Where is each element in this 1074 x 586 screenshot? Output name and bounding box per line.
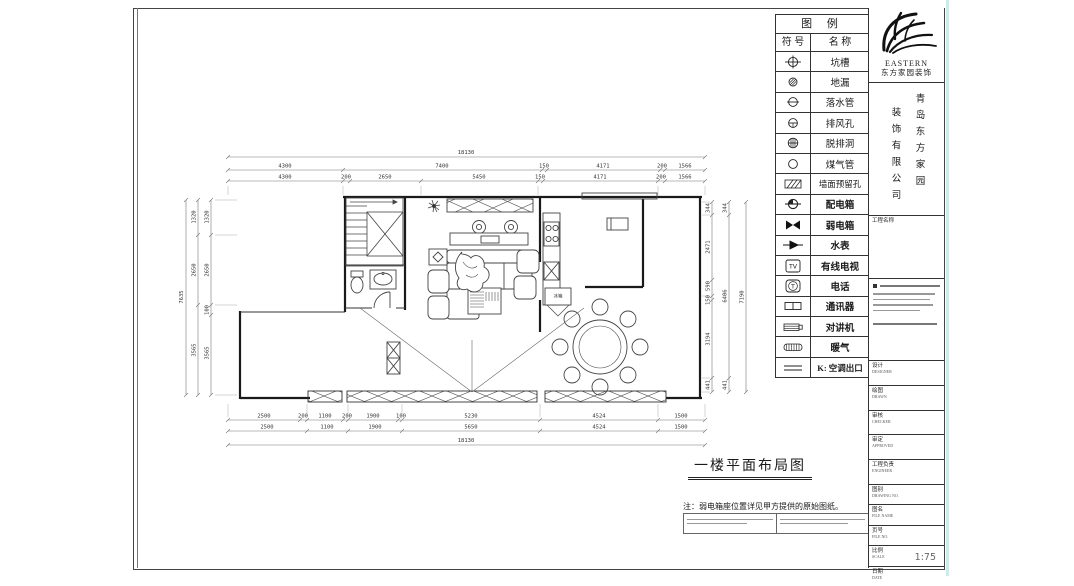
bay-window xyxy=(447,199,533,212)
pit-symbol xyxy=(782,55,804,69)
dining-chair xyxy=(632,339,648,355)
floor-plan-canvas: 冰箱 xyxy=(150,130,800,475)
svg-text:200: 200 xyxy=(657,164,667,170)
svg-text:2650: 2650 xyxy=(205,263,211,276)
svg-text:5230: 5230 xyxy=(464,414,477,420)
svg-text:18130: 18130 xyxy=(458,150,475,156)
legend-col-symbol: 符 号 xyxy=(776,34,811,51)
living-room-furniture xyxy=(428,199,539,319)
intercom-symbol xyxy=(782,320,804,334)
svg-text:2650: 2650 xyxy=(378,175,391,181)
legend-row: 弱电箱 xyxy=(776,215,869,235)
dining-chair xyxy=(552,339,568,355)
toilet-tank-icon xyxy=(351,271,363,277)
svg-text:1900: 1900 xyxy=(368,425,381,431)
titleblock-row-scale: 比例SCALE 1:75 xyxy=(869,546,944,566)
svg-text:4300: 4300 xyxy=(278,175,291,181)
svg-text:150: 150 xyxy=(706,295,712,305)
svg-text:1320: 1320 xyxy=(192,210,198,223)
toilet-icon xyxy=(351,277,363,293)
exhaust-vent-symbol xyxy=(782,116,804,130)
dining-chair xyxy=(564,311,580,327)
legend-row: 煤气管 xyxy=(776,154,869,174)
staircase xyxy=(346,198,403,266)
legend-row: 排风孔 xyxy=(776,113,869,133)
note-footer-right xyxy=(776,514,869,533)
plant-icon xyxy=(428,200,440,212)
svg-text:6406: 6406 xyxy=(723,289,729,302)
svg-text:344: 344 xyxy=(723,202,729,213)
titleblock-row-approved: 审定APPROVED xyxy=(869,435,944,460)
legend-table: 图 例 符 号 名 称 坑槽 地漏 落水管 排风孔 脱排洞 煤气管 墙面预留孔 … xyxy=(775,14,870,378)
weak-current-box-symbol xyxy=(782,218,804,232)
svg-text:7190: 7190 xyxy=(740,290,746,303)
wall-reserved-hole-symbol xyxy=(782,177,804,191)
svg-text:100: 100 xyxy=(205,305,211,315)
svg-text:7400: 7400 xyxy=(435,164,448,170)
titleblock-notes-box xyxy=(869,279,944,361)
dining-chair xyxy=(620,311,636,327)
legend-row: 墙面预留孔 xyxy=(776,174,869,194)
armchair xyxy=(517,250,539,273)
company-logo-block: EASTERN 东方家园装饰 xyxy=(869,8,944,83)
communicator-symbol xyxy=(782,299,804,313)
cable-tv-symbol: TV xyxy=(782,259,804,273)
svg-text:4300: 4300 xyxy=(278,164,291,170)
scale-value: 1:75 xyxy=(915,552,936,563)
titleblock-row-checker: 审核CHECKER xyxy=(869,411,944,436)
armchair xyxy=(428,296,449,319)
legend-row: 暖气 xyxy=(776,337,869,357)
gas-pipe-symbol xyxy=(782,157,804,171)
structural-column xyxy=(387,342,400,374)
svg-text:1100: 1100 xyxy=(318,414,331,420)
svg-text:4524: 4524 xyxy=(592,414,606,420)
svg-text:2500: 2500 xyxy=(257,414,270,420)
titleblock-row-date: 日期DATE xyxy=(869,567,944,586)
legend-row: 地漏 xyxy=(776,72,869,92)
armchair xyxy=(428,270,449,293)
svg-text:100: 100 xyxy=(396,414,406,420)
dining-set xyxy=(552,299,648,395)
pendant-lamp-icon xyxy=(473,221,486,234)
svg-text:7635: 7635 xyxy=(179,290,185,303)
plan-title: 一楼平面布局图 xyxy=(688,455,812,480)
svg-text:344: 344 xyxy=(706,202,712,213)
project-name-box: 工程名称 xyxy=(869,216,944,279)
company-name-right: 青岛东方家园 xyxy=(912,93,926,215)
svg-text:TV: TV xyxy=(788,263,798,270)
company-name-vertical: 装饰有限公司 青岛东方家园 xyxy=(869,83,944,216)
svg-text:150: 150 xyxy=(539,164,549,170)
company-name-left: 装饰有限公司 xyxy=(888,107,902,215)
door-swing-arc xyxy=(374,292,390,308)
svg-text:441: 441 xyxy=(706,380,712,390)
svg-text:4171: 4171 xyxy=(593,175,606,181)
dining-chair xyxy=(592,299,608,315)
legend-row: 水表 xyxy=(776,236,869,256)
svg-text:2471: 2471 xyxy=(706,240,712,253)
titleblock-row-file-no: 页号FILE NO. xyxy=(869,526,944,546)
svg-text:5650: 5650 xyxy=(464,425,477,431)
svg-text:5450: 5450 xyxy=(472,175,485,181)
legend-row: 配电箱 xyxy=(776,195,869,215)
svg-text:200: 200 xyxy=(342,414,352,420)
svg-text:3194: 3194 xyxy=(706,332,712,346)
svg-text:1500: 1500 xyxy=(674,425,687,431)
sheet-inner-border xyxy=(137,8,138,568)
svg-text:200: 200 xyxy=(341,175,351,181)
legend-title: 图 例 xyxy=(776,15,869,34)
note-footer-left xyxy=(684,514,776,533)
titleblock-row-drawing-no: 图别DRAWING NO. xyxy=(869,485,944,505)
floor-drain-symbol xyxy=(782,75,804,89)
downpipe-symbol xyxy=(782,95,804,109)
logo-text-en: EASTERN xyxy=(869,60,944,68)
ac-outlet-symbol xyxy=(782,361,804,375)
hood-hole-symbol xyxy=(782,136,804,150)
svg-text:441: 441 xyxy=(723,380,729,390)
svg-text:4171: 4171 xyxy=(596,164,609,170)
legend-row: 坑槽 xyxy=(776,52,869,72)
water-meter-symbol xyxy=(782,238,804,252)
pendant-lamp-icon xyxy=(505,221,518,234)
logo-text-zh: 东方家园装饰 xyxy=(869,68,944,77)
titleblock-row-engineer: 工程负责ENGINEER xyxy=(869,460,944,485)
wall-cabinet xyxy=(607,218,628,230)
svg-text:2500: 2500 xyxy=(260,425,273,431)
telephone-symbol: T xyxy=(782,279,804,293)
svg-text:1320: 1320 xyxy=(205,210,211,223)
project-name-label: 工程名称 xyxy=(872,218,894,224)
legend-row: TV 有线电视 xyxy=(776,256,869,276)
dining-chair xyxy=(564,367,580,383)
dining-table xyxy=(573,320,627,374)
legend-row: K: 空调出口 xyxy=(776,358,869,377)
canvas-edge-strip xyxy=(946,0,949,576)
plan-note: 注：弱电箱座位置详见甲方提供的原始图纸。 xyxy=(683,501,843,512)
svg-text:18130: 18130 xyxy=(458,438,475,444)
titleblock-row-file-name: 图名FILE NAME xyxy=(869,505,944,525)
svg-text:3565: 3565 xyxy=(205,346,211,359)
fridge-label: 冰箱 xyxy=(554,293,563,300)
title-block-column: EASTERN 东方家园装饰 装饰有限公司 青岛东方家园 工程名称 设计DESI… xyxy=(868,8,944,568)
armchair xyxy=(514,276,536,299)
legend-row: 脱排洞 xyxy=(776,134,869,154)
bathroom-fixtures xyxy=(351,270,396,308)
note-footer-cells xyxy=(683,513,869,534)
svg-text:200: 200 xyxy=(298,414,308,420)
legend-row: T 电话 xyxy=(776,276,869,296)
legend-row: 落水管 xyxy=(776,93,869,113)
svg-text:1500: 1500 xyxy=(674,414,687,420)
svg-text:T: T xyxy=(790,283,795,290)
radiator-symbol xyxy=(782,340,804,354)
svg-text:4524: 4524 xyxy=(592,425,606,431)
dining-chair xyxy=(620,367,636,383)
legend-row: 通讯器 xyxy=(776,297,869,317)
svg-text:1566: 1566 xyxy=(678,164,691,170)
titleblock-row-designer: 设计DESIGNER xyxy=(869,361,944,386)
svg-text:2650: 2650 xyxy=(192,263,198,276)
eastern-logo-icon xyxy=(870,8,944,54)
svg-text:1566: 1566 xyxy=(678,175,691,181)
legend-row: 对讲机 xyxy=(776,317,869,337)
legend-col-name: 名 称 xyxy=(811,34,869,51)
bottom-windows xyxy=(308,391,666,402)
svg-text:3565: 3565 xyxy=(192,343,198,356)
svg-text:150: 150 xyxy=(535,175,545,181)
titleblock-row-drawn: 绘图DRAWN xyxy=(869,386,944,411)
svg-text:1900: 1900 xyxy=(366,414,379,420)
power-distribution-box-symbol xyxy=(782,197,804,211)
svg-text:590: 590 xyxy=(706,281,712,291)
svg-text:200: 200 xyxy=(656,175,666,181)
svg-text:1100: 1100 xyxy=(320,425,333,431)
